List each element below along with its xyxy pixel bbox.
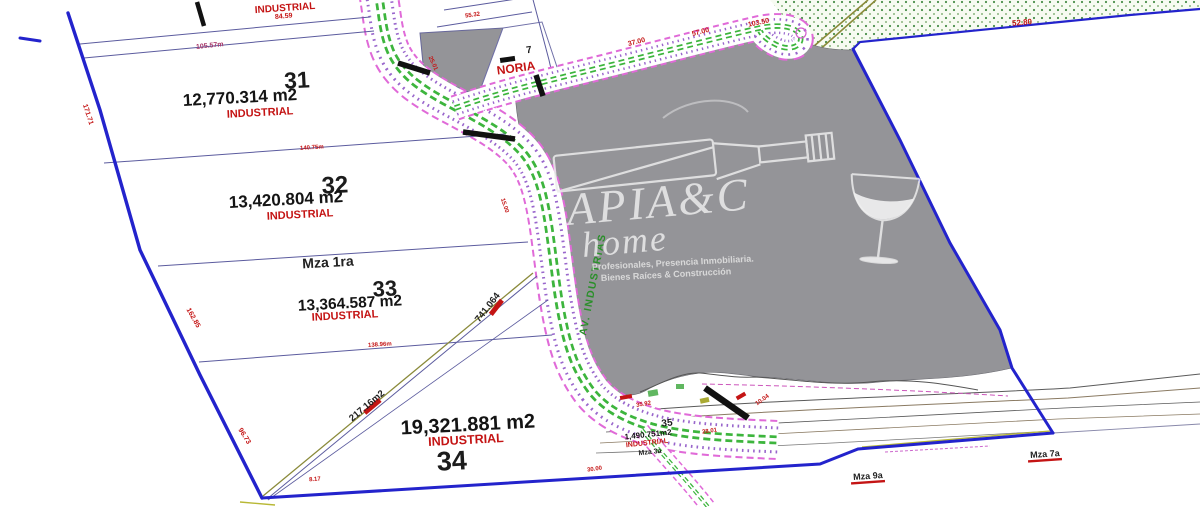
block-label-mza1ra: Mza 1ra <box>302 253 354 272</box>
dimension-label: 8.17 <box>309 476 322 483</box>
site-plan-drawing: 31 12,770.314 m2 INDUSTRIAL 32 13,420.80… <box>0 0 1200 507</box>
block-label-mza7a: Mza 7a <box>1030 448 1061 460</box>
lot-34-number: 34 <box>436 445 468 477</box>
dimension-label: 52.80 <box>1012 17 1033 28</box>
land-survey-plan: 31 12,770.314 m2 INDUSTRIAL 32 13,420.80… <box>0 0 1200 507</box>
block-label-mza9a: Mza 9a <box>853 470 884 482</box>
